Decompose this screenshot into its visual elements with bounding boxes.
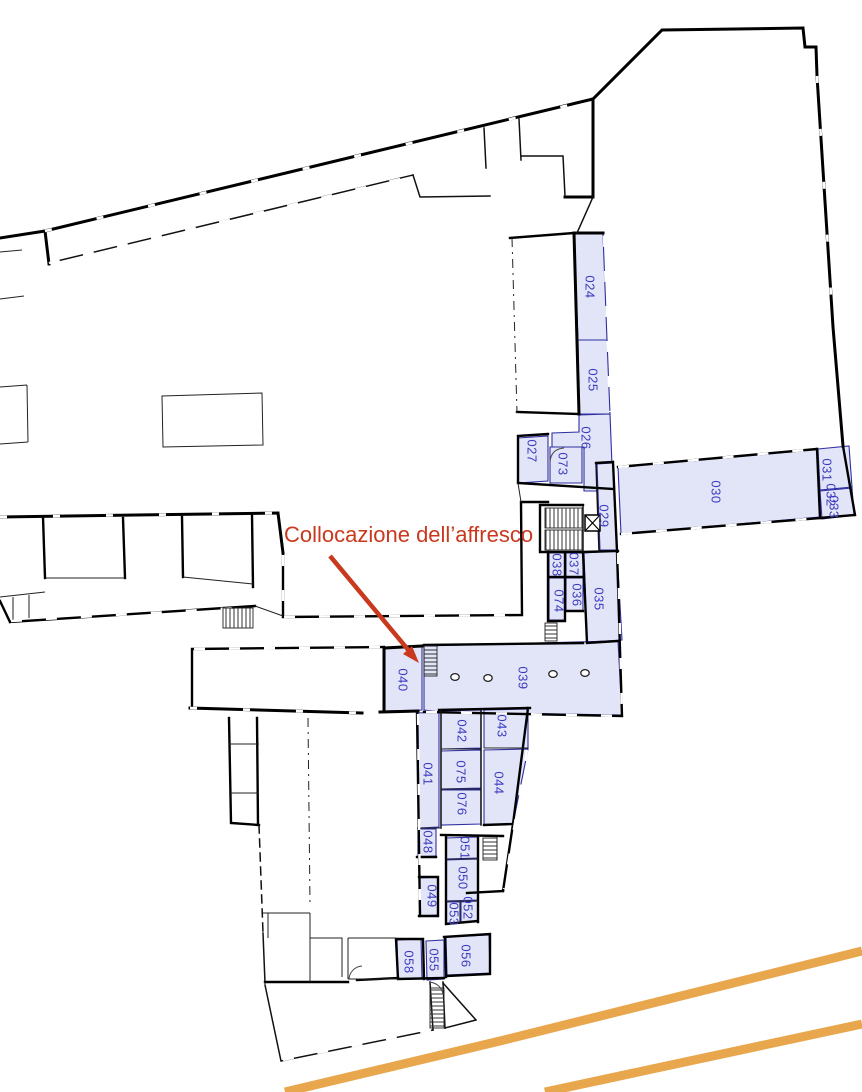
wing-staircase-icon	[223, 608, 253, 628]
interior-walls	[0, 233, 855, 982]
main-staircase-icon	[545, 530, 583, 550]
column-icon	[451, 674, 459, 681]
road-line-upper	[285, 951, 862, 1092]
room-label-058: 058	[401, 950, 416, 973]
room-label-029: 029	[596, 504, 611, 527]
room-label-031: 031	[819, 458, 834, 481]
room-label-027: 027	[524, 439, 539, 462]
room-label-049: 049	[424, 884, 439, 907]
annotation-text: Collocazione dell’affresco	[284, 522, 533, 547]
room-label-052: 052	[460, 896, 475, 919]
room-label-076: 076	[454, 792, 469, 815]
road-lines	[285, 951, 862, 1092]
room-label-038: 038	[549, 553, 564, 576]
fresco-staircase-icon	[424, 646, 437, 676]
room-label-036: 036	[569, 583, 584, 606]
room-label-024: 024	[582, 275, 597, 298]
room-label-055: 055	[426, 948, 441, 971]
exit-staircase-icon	[430, 988, 444, 1028]
room-label-039: 039	[515, 666, 530, 689]
room-label-042: 042	[454, 719, 469, 742]
room-label-075: 075	[453, 760, 468, 783]
column-icon	[549, 671, 557, 678]
column-icon	[484, 675, 492, 682]
room-label-030: 030	[708, 480, 723, 503]
floor-plan-page: { "annotation": { "text": "Collocazione …	[0, 0, 862, 1092]
room-label-073: 073	[555, 452, 570, 475]
annotation-arrow	[330, 556, 410, 652]
room-label-044: 044	[491, 771, 506, 794]
staircase-051-icon	[483, 838, 497, 860]
room-label-026: 026	[578, 426, 593, 449]
column-icon	[581, 670, 589, 677]
outbuilding-rectangle	[162, 393, 263, 447]
room-label-041: 041	[420, 762, 435, 785]
room-label-074: 074	[551, 589, 566, 612]
exterior-walls	[0, 28, 843, 713]
room-label-040: 040	[395, 668, 410, 691]
room-label-037: 037	[566, 552, 581, 575]
annotation: Collocazione dell’affresco	[284, 522, 533, 663]
room-label-025: 025	[585, 368, 600, 391]
road-line-lower	[545, 1024, 862, 1092]
staircase-074-icon	[545, 623, 557, 641]
room-label-043: 043	[494, 714, 509, 737]
room-label-053: 053	[446, 902, 461, 925]
room-label-050: 050	[455, 866, 470, 889]
main-staircase-icon	[545, 508, 583, 528]
room-label-048: 048	[420, 830, 435, 853]
room-label-035: 035	[591, 587, 606, 610]
room-label-056: 056	[458, 944, 473, 967]
room-label-033: 033	[826, 495, 841, 518]
room-label-051: 051	[457, 836, 472, 859]
wall-details	[0, 119, 599, 1061]
floor-plan-drawing: 0240250260270730290300310320330350360370…	[0, 0, 862, 1092]
